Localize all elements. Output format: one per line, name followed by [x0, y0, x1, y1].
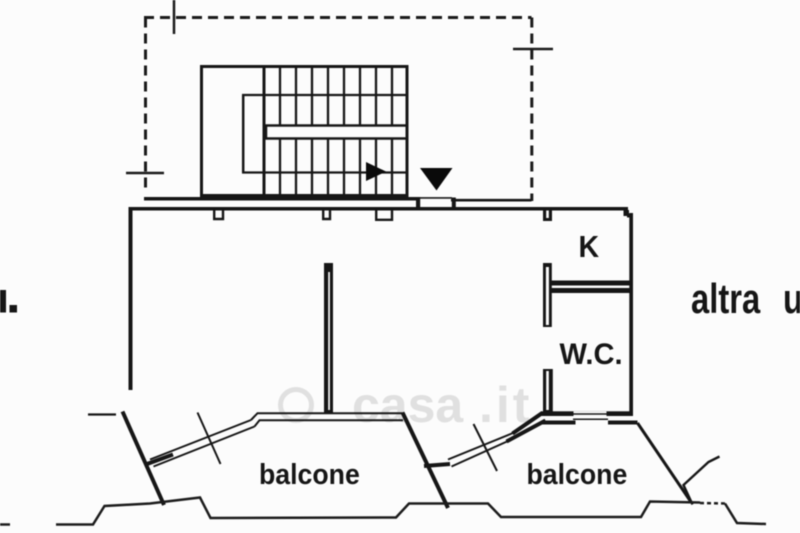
svg-text:altra: altra: [691, 275, 761, 322]
svg-text:balcone: balcone: [527, 458, 628, 490]
svg-text:K: K: [579, 230, 600, 264]
svg-text:balcone: balcone: [259, 458, 360, 490]
svg-text:u: u: [783, 275, 800, 322]
svg-text:W.C.: W.C.: [560, 338, 623, 371]
